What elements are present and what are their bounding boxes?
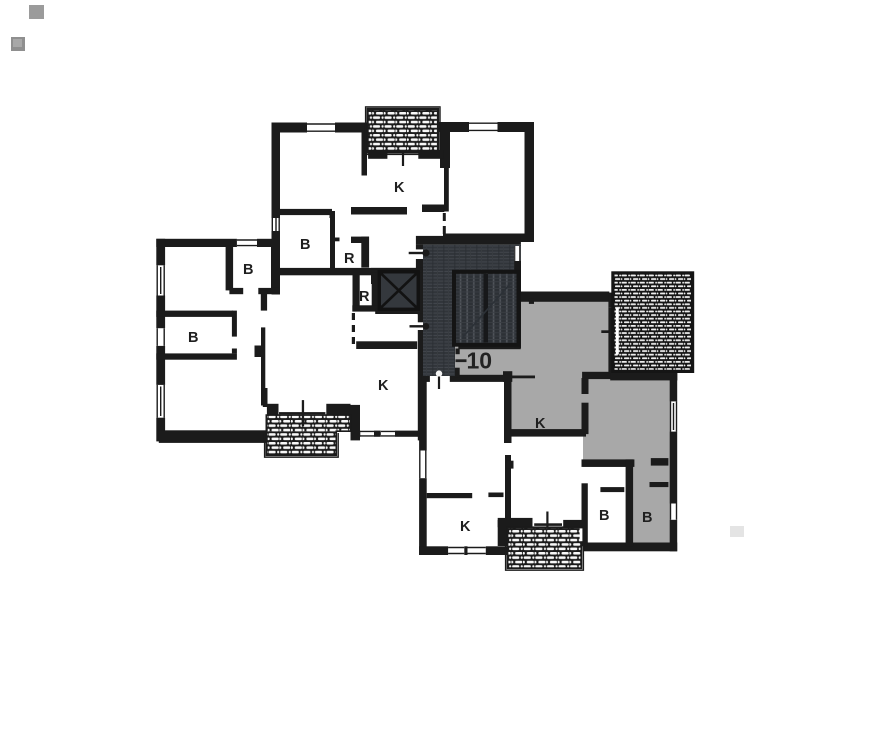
svg-text:B: B bbox=[599, 508, 609, 524]
svg-text:K: K bbox=[460, 519, 471, 535]
svg-text:K: K bbox=[535, 416, 546, 432]
svg-text:B: B bbox=[188, 330, 198, 346]
svg-text:K: K bbox=[394, 180, 405, 196]
svg-text:10: 10 bbox=[467, 348, 493, 374]
svg-text:B: B bbox=[243, 262, 253, 278]
svg-text:B: B bbox=[642, 510, 652, 526]
svg-text:R: R bbox=[359, 289, 370, 305]
svg-text:R: R bbox=[344, 251, 355, 267]
svg-text:B: B bbox=[300, 237, 310, 253]
svg-text:K: K bbox=[378, 378, 389, 394]
